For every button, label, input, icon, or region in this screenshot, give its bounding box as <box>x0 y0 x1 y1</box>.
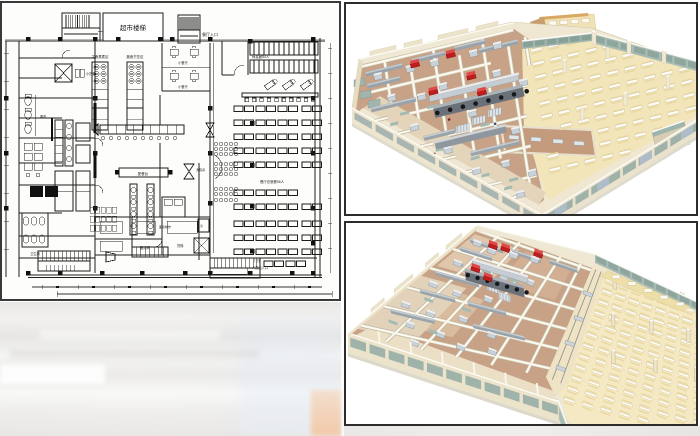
svg-text:更衣: 更衣 <box>40 114 47 119</box>
svg-text:休息廊54人: 休息廊54人 <box>252 54 270 59</box>
svg-text:人员出入口: 人员出入口 <box>252 265 268 270</box>
svg-text:餐厅总就餐56人: 餐厅总就餐56人 <box>260 179 285 184</box>
svg-text:副食烹饪区: 副食烹饪区 <box>127 54 145 59</box>
svg-text:面点制作: 面点制作 <box>159 224 171 229</box>
svg-text:超市楼梯: 超市楼梯 <box>120 23 147 32</box>
svg-text:货梯: 货梯 <box>177 243 184 248</box>
svg-text:面点间: 面点间 <box>140 245 151 250</box>
svg-text:门厅: 门厅 <box>254 258 261 263</box>
svg-text:洗碗间: 洗碗间 <box>196 167 205 172</box>
svg-text:餐厅入口: 餐厅入口 <box>202 31 218 37</box>
svg-text:小餐厅: 小餐厅 <box>178 84 188 89</box>
svg-text:小餐厅: 小餐厅 <box>178 60 188 65</box>
svg-text:配餐台: 配餐台 <box>138 171 149 176</box>
svg-text:主食蒸煮区: 主食蒸煮区 <box>92 54 110 59</box>
svg-text:冷: 冷 <box>200 223 203 228</box>
